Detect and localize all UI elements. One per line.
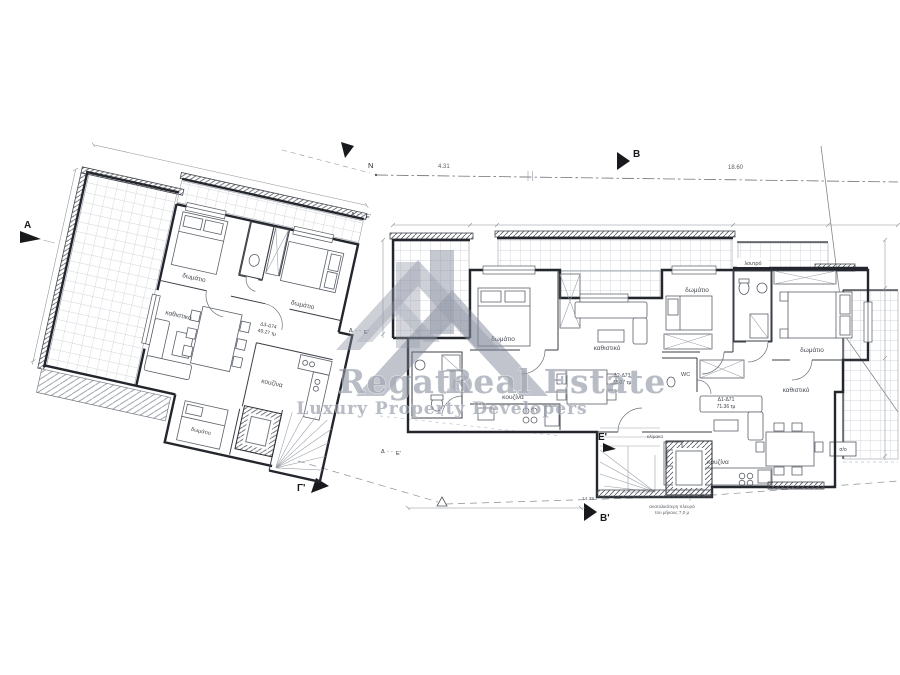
room-label-stairs: κλίμακα	[647, 434, 664, 440]
bed	[780, 292, 852, 338]
section-e-label: Ε'	[396, 451, 401, 457]
section-arrow-b-prime	[584, 503, 597, 521]
bed	[666, 296, 712, 330]
room-label-bedroom: δωμάτιο	[182, 271, 207, 284]
dim-top-right: 18.60	[728, 165, 744, 171]
room-label-bedroom: δωμάτιο	[685, 286, 709, 294]
elevator	[666, 441, 712, 495]
section-arrow-a	[20, 231, 41, 243]
watermark-brand-rest: Real Estate	[445, 362, 666, 401]
bed	[171, 212, 228, 275]
room-label-bedroom: δωμάτιο	[800, 346, 824, 354]
section-pair-3: Δ Ε'	[381, 449, 401, 457]
room-label-bath: λουτρό	[744, 260, 761, 267]
bed	[177, 401, 229, 450]
section-arrow-top	[341, 142, 354, 158]
delta-triangle-marker	[437, 497, 447, 506]
room-label-wc: WC	[681, 372, 690, 378]
storage-label: σ/ο	[839, 447, 846, 453]
marker-gamma: Γ'	[297, 483, 305, 494]
marker-a: A	[24, 220, 31, 231]
room-label-kitchen: κουζίνα	[261, 377, 284, 390]
room-label-living: καθιστικό	[165, 308, 193, 322]
elevator	[235, 406, 282, 457]
section-d-label: Δ	[381, 449, 385, 455]
bed	[280, 241, 343, 292]
dining-table	[756, 423, 823, 475]
left-building: δωμάτιο δωμάτιο δωμάτιο καθιστικό κουζίν…	[19, 140, 381, 482]
marker-b: B	[633, 149, 640, 160]
section-arrow-e-prime	[603, 443, 616, 452]
watermark-tagline: Luxury Property Developers	[296, 399, 587, 419]
floor-plan: N 4.31 18.60 B A Γ' B' 14.39 ανατολικότε…	[0, 0, 900, 675]
room-label-living: καθιστικό	[594, 344, 621, 352]
marker-e-prime: E'	[598, 432, 607, 443]
sofa	[575, 302, 647, 344]
section-arrow-b	[617, 152, 630, 170]
apartment-code: Δ1-Δ71	[718, 397, 735, 403]
dim-top-left: 4.31	[438, 164, 450, 170]
north-point	[375, 174, 377, 176]
wc: WC	[667, 372, 690, 387]
stairwell: κλίμακα E'	[597, 408, 712, 497]
dim-bottom: 14.39	[582, 496, 594, 502]
room-label-living: καθιστικό	[783, 386, 810, 394]
floor-plan-canvas: N 4.31 18.60 B A Γ' B' 14.39 ανατολικότε…	[0, 0, 900, 675]
stairs	[276, 411, 333, 478]
site-note-line1: ανατολικότερη πλευρά	[649, 503, 695, 509]
apartment-area: 71.36 τμ	[717, 404, 736, 410]
bathroom	[240, 222, 274, 280]
north-label: N	[368, 161, 373, 170]
site-note-line2: του μήκους 7,0 μ	[655, 509, 690, 515]
marker-b-prime: B'	[600, 513, 610, 524]
room-label-bedroom: δωμάτιο	[290, 298, 315, 311]
